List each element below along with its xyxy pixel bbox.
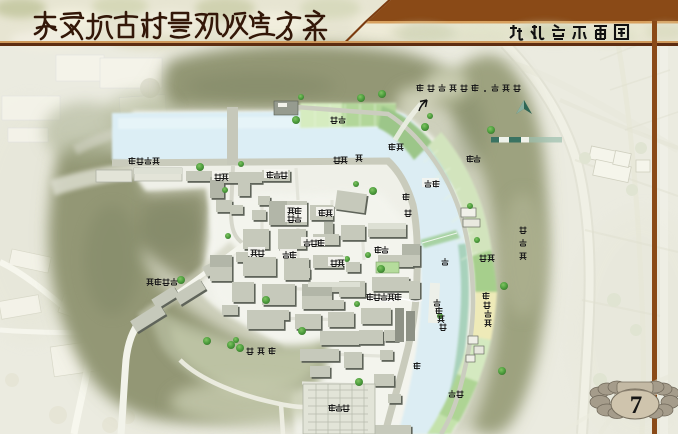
svg-text:7: 7 (630, 392, 643, 419)
